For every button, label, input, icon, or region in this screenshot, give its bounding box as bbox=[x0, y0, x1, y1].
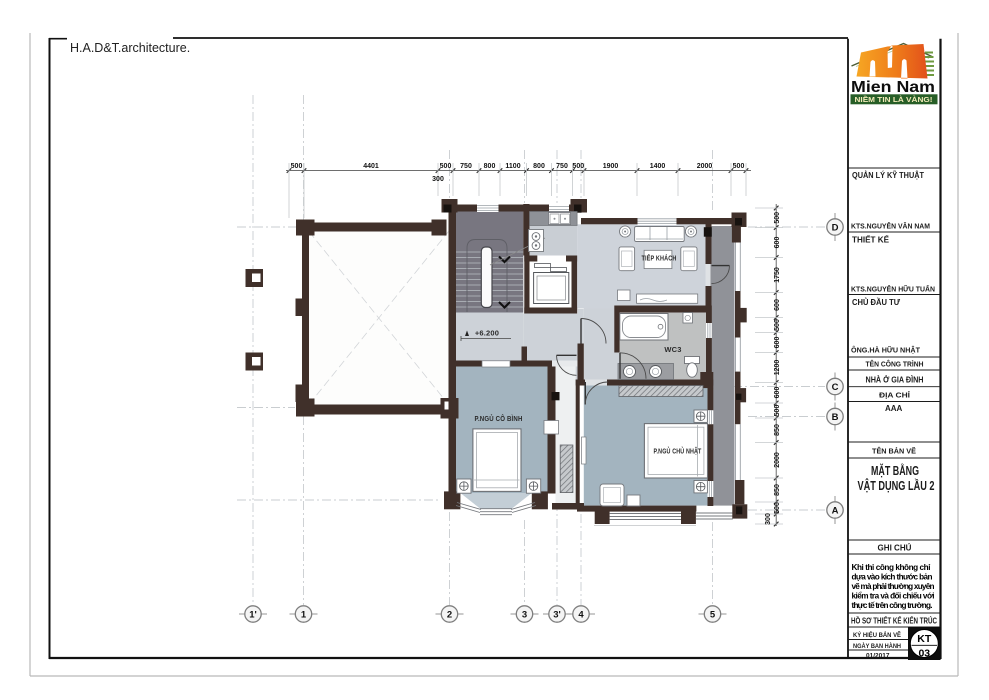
svg-text:A: A bbox=[832, 505, 839, 516]
svg-text:750: 750 bbox=[460, 163, 472, 170]
svg-text:1900: 1900 bbox=[603, 163, 619, 170]
svg-text:NGÀY BAN HÀNH: NGÀY BAN HÀNH bbox=[853, 641, 901, 650]
svg-text:vẽ mà phải thường xuyên: vẽ mà phải thường xuyên bbox=[852, 582, 935, 591]
svg-text:1200: 1200 bbox=[774, 360, 781, 376]
svg-text:kiểm tra và đối chiếu với: kiểm tra và đối chiếu với bbox=[852, 591, 935, 601]
svg-text:500: 500 bbox=[291, 163, 303, 170]
svg-text:NHÀ Ở GIA ĐÌNH: NHÀ Ở GIA ĐÌNH bbox=[866, 376, 924, 385]
svg-text:01/2017: 01/2017 bbox=[866, 653, 890, 660]
svg-text:Khi thi công không chỉ: Khi thi công không chỉ bbox=[852, 563, 932, 572]
svg-text:3: 3 bbox=[522, 609, 527, 620]
svg-text:KTS.NGUYỄN HỮU TUẤN: KTS.NGUYỄN HỮU TUẤN bbox=[851, 284, 935, 294]
svg-text:CHỦ ĐẦU TƯ: CHỦ ĐẦU TƯ bbox=[852, 297, 900, 307]
svg-text:4401: 4401 bbox=[363, 163, 379, 170]
svg-text:1': 1' bbox=[249, 609, 257, 620]
svg-text:03: 03 bbox=[918, 648, 930, 660]
svg-text:KTS.NGUYỄN VĂN NAM: KTS.NGUYỄN VĂN NAM bbox=[851, 222, 930, 231]
svg-text:2: 2 bbox=[447, 609, 452, 620]
svg-text:VẬT DỤNG LẦU 2: VẬT DỤNG LẦU 2 bbox=[858, 478, 935, 493]
svg-text:500: 500 bbox=[774, 212, 781, 224]
svg-text:800: 800 bbox=[484, 163, 496, 170]
svg-text:+6.200: +6.200 bbox=[475, 329, 499, 338]
svg-text:KT: KT bbox=[917, 633, 932, 645]
svg-text:850: 850 bbox=[774, 424, 781, 436]
svg-text:300: 300 bbox=[432, 176, 444, 183]
svg-text:300: 300 bbox=[765, 513, 772, 525]
svg-text:5: 5 bbox=[710, 609, 716, 620]
svg-text:thực tế trên công trường.: thực tế trên công trường. bbox=[852, 601, 933, 610]
svg-text:2000: 2000 bbox=[774, 452, 781, 468]
svg-text:500: 500 bbox=[774, 405, 781, 417]
svg-text:P.NGỦ CÔ BÌNH: P.NGỦ CÔ BÌNH bbox=[475, 414, 523, 423]
svg-text:ĐỊA CHỈ: ĐỊA CHỈ bbox=[879, 391, 910, 400]
svg-text:dựa vào kích thước bản: dựa vào kích thước bản bbox=[852, 573, 933, 582]
svg-text:800: 800 bbox=[533, 163, 545, 170]
svg-text:500: 500 bbox=[774, 319, 781, 331]
svg-text:750: 750 bbox=[556, 163, 568, 170]
svg-text:500: 500 bbox=[572, 163, 584, 170]
svg-text:1400: 1400 bbox=[650, 163, 666, 170]
svg-text:500: 500 bbox=[733, 163, 745, 170]
svg-text:QUẢN LÝ KỸ THUẬT: QUẢN LÝ KỸ THUẬT bbox=[852, 171, 924, 180]
svg-text:AAA: AAA bbox=[885, 404, 903, 413]
svg-text:850: 850 bbox=[774, 484, 781, 496]
svg-text:1100: 1100 bbox=[505, 163, 520, 170]
svg-text:P.NGỦ CHỦ NHẬT: P.NGỦ CHỦ NHẬT bbox=[654, 447, 702, 456]
svg-text:4: 4 bbox=[578, 609, 584, 620]
svg-text:GHI CHÚ: GHI CHÚ bbox=[878, 544, 912, 553]
svg-text:1750: 1750 bbox=[774, 267, 781, 283]
svg-text:B: B bbox=[832, 412, 839, 423]
svg-text:3': 3' bbox=[553, 609, 561, 620]
svg-text:KÝ HIỆU BẢN VẼ: KÝ HIỆU BẢN VẼ bbox=[853, 630, 902, 639]
svg-text:THIẾT KẾ: THIẾT KẾ bbox=[852, 235, 890, 245]
svg-text:TIẾP KHÁCH: TIẾP KHÁCH bbox=[642, 253, 677, 263]
svg-text:TÊN BẢN VẼ: TÊN BẢN VẼ bbox=[872, 447, 916, 456]
svg-text:500: 500 bbox=[440, 163, 452, 170]
svg-text:600: 600 bbox=[774, 237, 781, 249]
svg-text:HỒ SƠ THIẾT KẾ KIẾN TRÚC: HỒ SƠ THIẾT KẾ KIẾN TRÚC bbox=[851, 615, 937, 626]
svg-text:1: 1 bbox=[301, 609, 307, 620]
svg-text:2000: 2000 bbox=[697, 163, 713, 170]
svg-text:500: 500 bbox=[774, 502, 781, 514]
svg-text:600: 600 bbox=[774, 337, 781, 349]
svg-text:C: C bbox=[832, 382, 839, 393]
svg-text:MẶT BẰNG: MẶT BẰNG bbox=[871, 463, 919, 478]
svg-text:H.A.D&T.architecture.: H.A.D&T.architecture. bbox=[70, 41, 190, 55]
svg-text:Mien Nam: Mien Nam bbox=[851, 79, 935, 96]
svg-text:600: 600 bbox=[774, 387, 781, 399]
svg-text:600: 600 bbox=[774, 299, 781, 311]
svg-text:NIỀM TIN LÀ VÀNG!: NIỀM TIN LÀ VÀNG! bbox=[855, 94, 933, 104]
svg-text:ÔNG.HÀ HỮU NHẬT: ÔNG.HÀ HỮU NHẬT bbox=[851, 346, 920, 355]
svg-text:WC3: WC3 bbox=[664, 345, 681, 354]
svg-text:TÊN CÔNG TRÌNH: TÊN CÔNG TRÌNH bbox=[866, 360, 924, 369]
svg-text:D: D bbox=[832, 222, 839, 233]
